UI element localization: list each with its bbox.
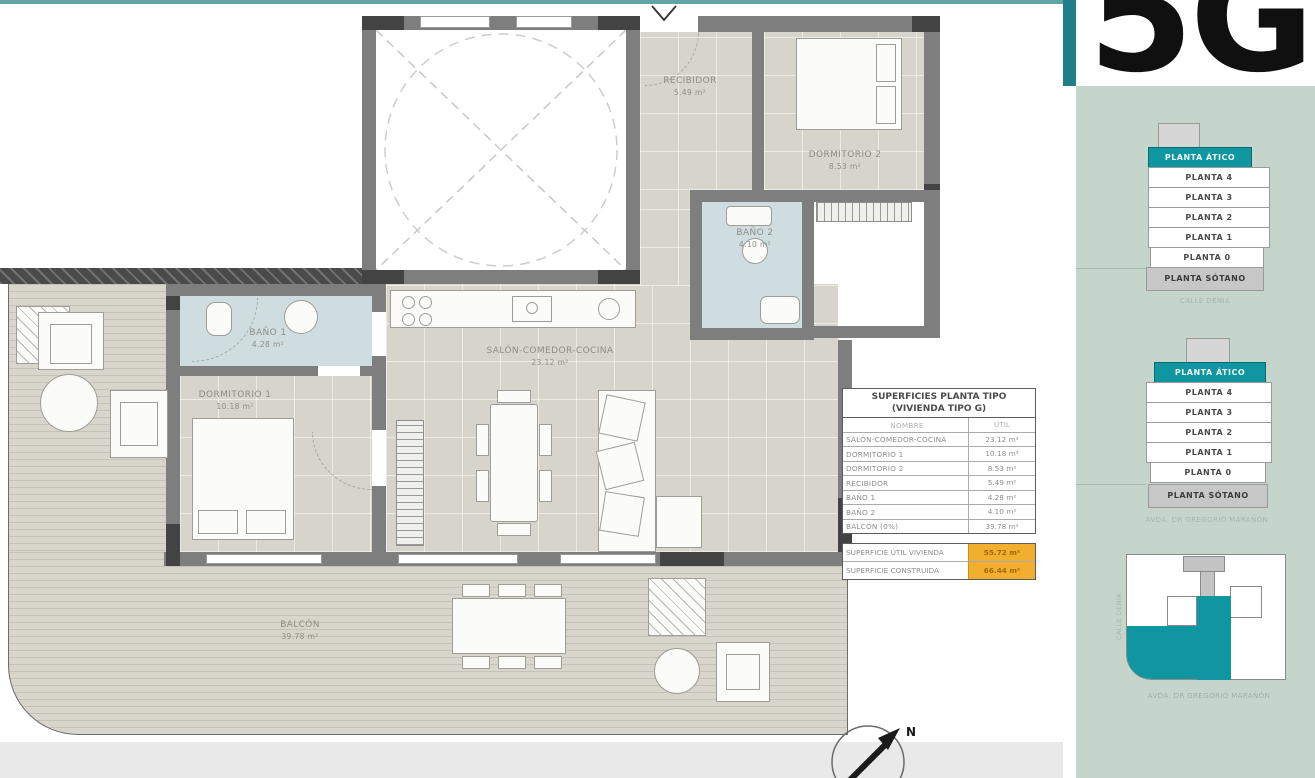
outdoor-table: [452, 598, 566, 654]
chair: [497, 390, 531, 403]
room-label-dormitorio2: DORMITORIO 2 8.53 m²: [780, 150, 910, 171]
room-label-salon: SALÓN-COMEDOR-COCINA 23.12 m²: [460, 346, 640, 367]
stove-burner-icon: [419, 296, 432, 309]
wall-segment: [702, 190, 806, 202]
floor-bar: PLANTA 4: [1148, 167, 1270, 188]
wall-segment: [690, 328, 814, 340]
extractor-icon: [598, 298, 620, 320]
dining-table: [490, 404, 538, 522]
wall-segment: [660, 552, 724, 566]
chair: [476, 470, 489, 502]
pillow: [198, 510, 238, 534]
table-row: DORMITORIO 110.18 m²: [843, 446, 1035, 461]
floor-bar-sotano: PLANTA SÓTANO: [1148, 484, 1268, 508]
compass-n-label: N: [906, 725, 916, 739]
building-stack-1: PLANTA ÁTICO PLANTA 4 PLANTA 3 PLANTA 2 …: [1146, 123, 1272, 323]
table-row: RECIBIDOR5.49 m²: [843, 475, 1035, 490]
surfaces-totals: SUPERFICIE ÚTIL VIVIENDA 55.72 m² SUPERF…: [842, 543, 1036, 580]
chair: [498, 656, 526, 669]
stove-burner-icon: [402, 313, 415, 326]
ground-line: [1076, 268, 1146, 269]
room-label-balcon: BALCÓN 39.78 m²: [240, 620, 360, 641]
table-row: BALCÓN (0%)39.78 m²: [843, 519, 1035, 534]
unit-code: 5G: [1088, 0, 1308, 94]
table-row: BAÑO 14.28 m²: [843, 490, 1035, 505]
north-compass-icon: N: [820, 714, 930, 778]
room-label-recibidor: RECIBIDOR 5.49 m²: [630, 76, 750, 97]
wall-segment: [752, 32, 764, 190]
wall-segment: [924, 32, 940, 200]
stove-burner-icon: [419, 313, 432, 326]
patio-square: [1230, 586, 1262, 618]
window: [420, 16, 490, 28]
sofa-cushion: [599, 491, 645, 537]
sidebar: 5G PLANTA ÁTICO PLANTA 4 PLANTA 3 PLANTA…: [1063, 0, 1315, 778]
door-gap: [372, 312, 386, 356]
hall-floor: [640, 190, 690, 286]
wall-segment: [802, 202, 814, 340]
entry-arrow-icon: [650, 4, 678, 24]
highlight-value: 55.72 m²: [968, 544, 1035, 561]
chair: [462, 656, 490, 669]
armchair-seat: [726, 654, 760, 690]
wall-segment: [698, 16, 940, 32]
window: [206, 554, 322, 564]
chair: [539, 424, 552, 456]
street-caption: AVDA. DR GREGORIO MARAÑÓN: [1126, 692, 1292, 700]
table-header-row: NOMBRE ÚTIL: [843, 418, 1035, 432]
floor-bar: PLANTA 1: [1146, 442, 1272, 463]
wall-segment: [924, 200, 940, 338]
table-row: DORMITORIO 28.53 m²: [843, 461, 1035, 476]
patio-interior: [376, 30, 626, 270]
door-gap: [372, 430, 386, 486]
pillow: [876, 44, 896, 82]
table-row: SALÓN-COMEDOR-COCINA23.12 m²: [843, 432, 1035, 447]
floor-bar: PLANTA 0: [1150, 247, 1264, 268]
room-label-bano1: BAÑO 1 4.28 m²: [218, 328, 318, 349]
surfaces-table-title: SUPERFICIES PLANTA TIPO (VIVIENDA TIPO G…: [842, 388, 1036, 418]
wall-segment: [362, 270, 404, 284]
building-stack-2: PLANTA ÁTICO PLANTA 4 PLANTA 3 PLANTA 2 …: [1146, 338, 1272, 538]
floor-bar: PLANTA 3: [1146, 402, 1272, 423]
chair: [462, 584, 490, 597]
patio-square: [1167, 596, 1197, 626]
table-row: SUPERFICIE CONSTRUIDA 66.44 m²: [843, 561, 1035, 579]
pillow: [246, 510, 286, 534]
street-caption-vertical: CALLE DENIA: [1115, 593, 1123, 640]
floor-bar: PLANTA 4: [1146, 382, 1272, 403]
floor-bar: PLANTA 3: [1148, 187, 1270, 208]
chair: [534, 584, 562, 597]
wall-segment: [806, 190, 940, 202]
room-label-dormitorio1: DORMITORIO 1 10.18 m²: [170, 390, 300, 411]
floor-bar: PLANTA 1: [1148, 227, 1270, 248]
floorplan-sheet: SALÓN-COMEDOR-COCINA 23.12 m² RECIBIDOR …: [0, 0, 1315, 778]
door-gap: [318, 366, 360, 376]
pillow: [876, 86, 896, 124]
window: [560, 554, 656, 564]
street-caption: CALLE DENIA: [1142, 297, 1268, 305]
floor-bar: PLANTA 2: [1146, 422, 1272, 443]
wall-segment: [362, 16, 404, 30]
roof-box: [1158, 123, 1200, 148]
armchair-seat: [120, 402, 158, 446]
floor-plan: SALÓN-COMEDOR-COCINA 23.12 m² RECIBIDOR …: [0, 0, 1063, 778]
wall-segment: [166, 524, 180, 566]
plan-top-border: [0, 0, 1063, 4]
chair: [497, 523, 531, 536]
table-row: SUPERFICIE ÚTIL VIVIENDA 55.72 m²: [843, 544, 1035, 561]
street-caption: AVDA. DR GREGORIO MARAÑÓN: [1144, 516, 1270, 524]
site-plan: [1126, 552, 1292, 684]
unit-highlight-body: [1127, 626, 1231, 679]
stove-burner-icon: [402, 296, 415, 309]
washbasin: [726, 206, 772, 226]
highlight-value: 66.44 m²: [968, 562, 1035, 579]
core-cap: [1183, 556, 1225, 572]
floor-bar-atico: PLANTA ÁTICO: [1154, 362, 1266, 383]
sink-drain-icon: [526, 302, 538, 314]
wall-segment: [598, 16, 640, 30]
ground-line: [1076, 484, 1146, 485]
closet: [816, 202, 912, 222]
chair: [476, 424, 489, 456]
wall-segment: [912, 16, 940, 32]
surfaces-table: SUPERFICIES PLANTA TIPO (VIVIENDA TIPO G…: [842, 388, 1036, 580]
sidebar-accent-bar: [1063, 0, 1076, 86]
chair: [498, 584, 526, 597]
armchair-seat: [50, 324, 92, 364]
round-table: [654, 648, 700, 694]
window: [398, 554, 518, 564]
chair: [539, 470, 552, 502]
wardrobe: [396, 420, 424, 546]
window: [516, 16, 572, 28]
floor-bar-atico: PLANTA ÁTICO: [1148, 147, 1252, 168]
wall-segment: [814, 326, 940, 338]
planter: [648, 578, 706, 636]
sofa-cushion: [598, 394, 645, 441]
floor-bar-sotano: PLANTA SÓTANO: [1146, 267, 1264, 291]
bathtub: [760, 296, 800, 324]
table-row: BAÑO 24.10 m²: [843, 504, 1035, 519]
round-table: [40, 374, 98, 432]
roof-box: [1186, 338, 1230, 363]
wall-segment: [690, 190, 702, 340]
patio-cross-icon: [376, 30, 626, 270]
chair: [534, 656, 562, 669]
wall-segment: [598, 270, 640, 284]
floor-bar: PLANTA 2: [1148, 207, 1270, 228]
room-label-bano2: BAÑO 2 4.10 m²: [710, 228, 800, 249]
wall-segment: [166, 284, 380, 296]
wall-segment: [0, 268, 362, 284]
sofa-chaise: [656, 496, 702, 548]
floor-bar: PLANTA 0: [1150, 462, 1266, 483]
